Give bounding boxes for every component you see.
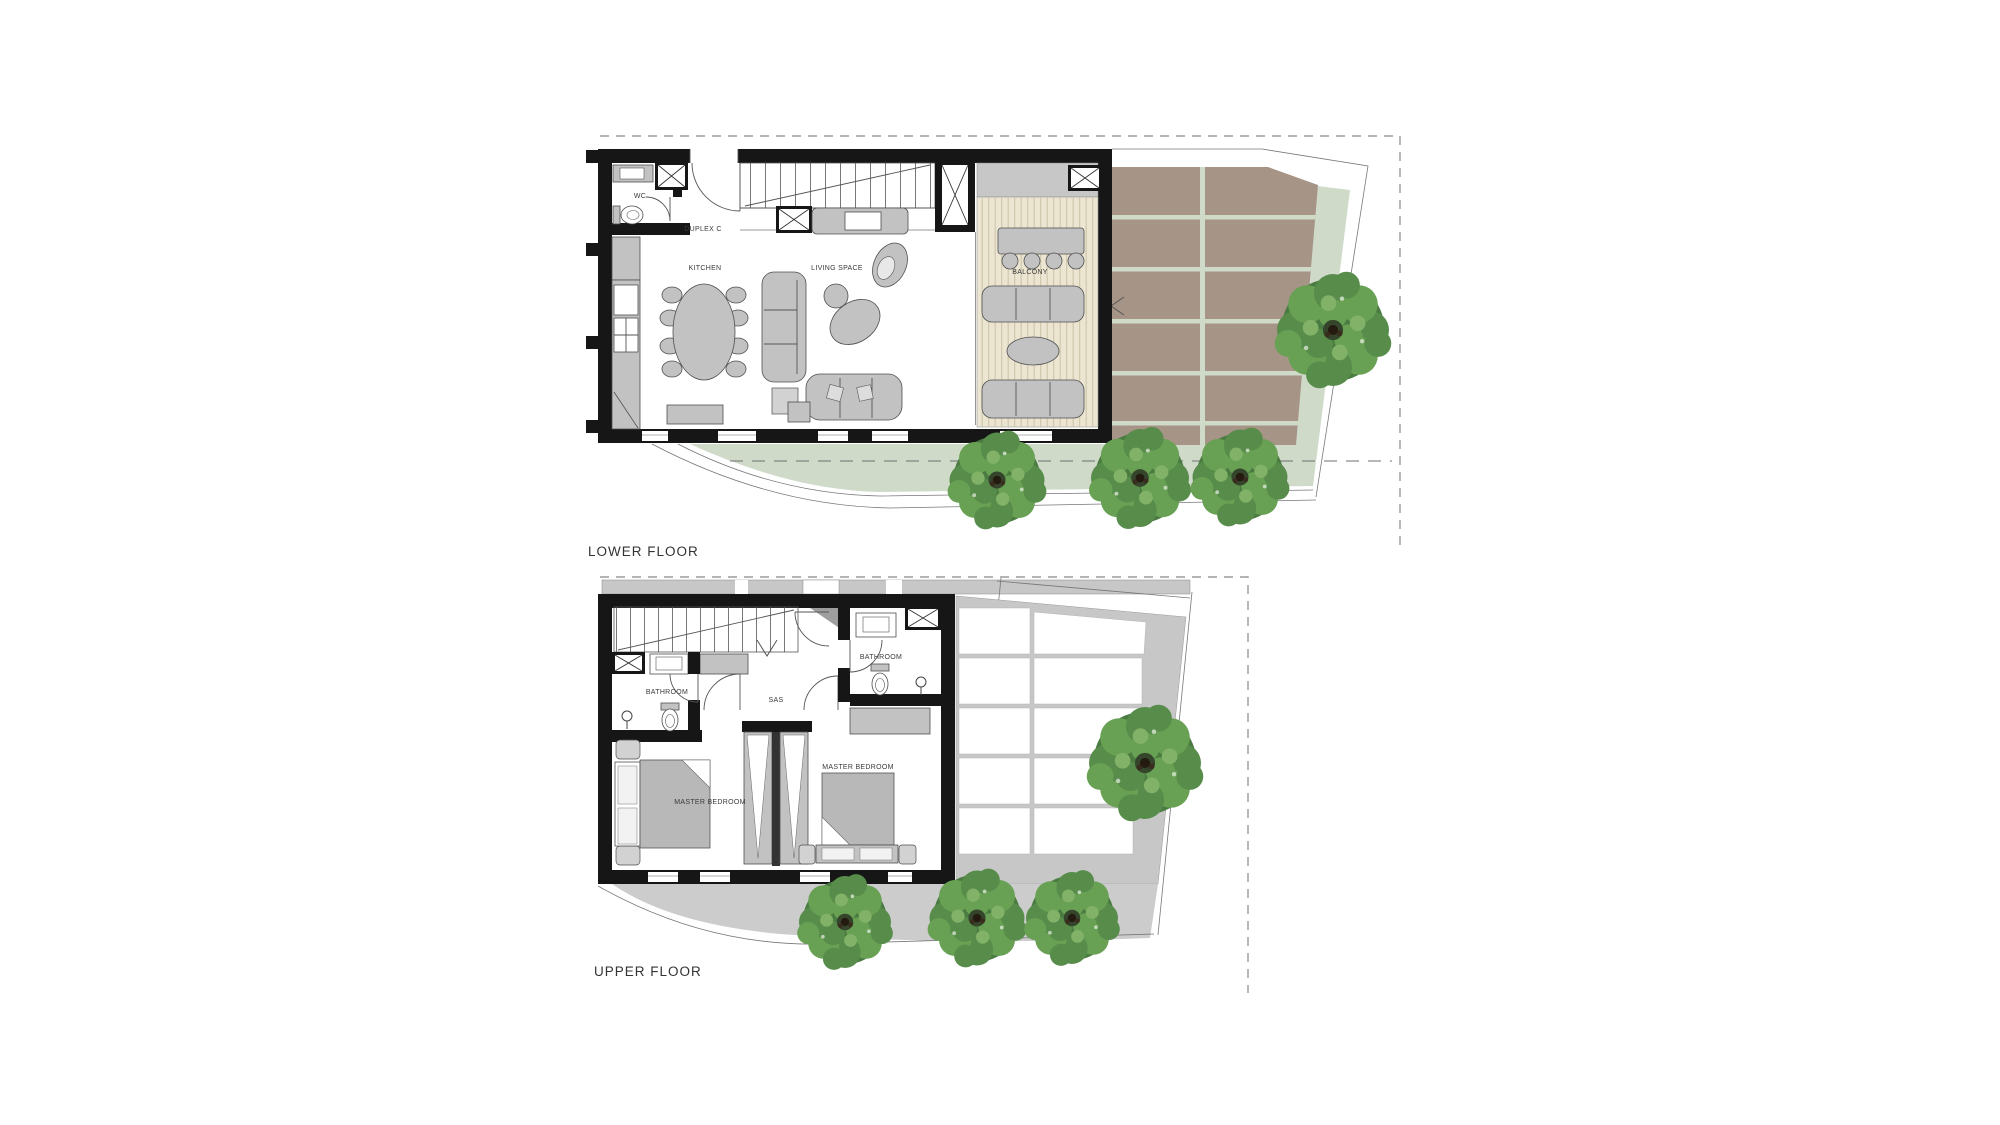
lower-balcony <box>977 163 1102 427</box>
dining-table-set <box>660 284 748 380</box>
stair-shaft <box>935 158 975 232</box>
upper-right-bedroom <box>799 773 916 864</box>
closet-icon <box>850 708 930 734</box>
shaft-icon <box>905 606 941 630</box>
sideboard-icon <box>667 405 723 424</box>
floor-title-upper: UPPER FLOOR <box>594 964 702 979</box>
bedroom-door-swing <box>704 674 740 710</box>
label-bathroom-left: BATHROOM <box>646 689 688 696</box>
shaft-icon <box>612 652 645 674</box>
nightstand-icon <box>799 845 815 864</box>
label-living-space: LIVING SPACE <box>811 265 863 272</box>
pouf-icon <box>824 284 848 308</box>
label-sas: SAS <box>769 697 784 704</box>
closet-icon <box>700 654 748 674</box>
sofa-icon <box>806 374 902 420</box>
label-kitchen: KITCHEN <box>689 265 722 272</box>
label-master-bedroom-left: MASTER BEDROOM <box>674 799 745 806</box>
upper-floor-plan: BATHROOM SAS BATHROOM MASTER BEDROOM MAS… <box>594 577 1248 993</box>
shaft-icon <box>655 162 688 190</box>
floor-plan-page: WC DUPLEX C KITCHEN LIVING SPACE BALCONY… <box>0 0 2000 1125</box>
bar-table-icon <box>998 228 1084 254</box>
nightstand-icon <box>899 845 916 864</box>
shower-icon <box>916 677 926 687</box>
outdoor-sofa-icon <box>982 286 1084 322</box>
kitchen-sink-counter <box>776 206 908 234</box>
upper-right-bathroom <box>838 606 943 734</box>
cooktop-icon <box>845 212 881 230</box>
side-table-icon <box>788 402 810 422</box>
outdoor-sofa-icon <box>982 380 1084 418</box>
label-duplex: DUPLEX C <box>684 226 721 233</box>
bed-icon <box>816 773 898 863</box>
floor-title-lower: LOWER FLOOR <box>588 544 699 559</box>
upper-roof-strip <box>602 580 1190 594</box>
nightstand-icon <box>616 846 640 865</box>
toilet-icon <box>613 206 620 224</box>
bedroom-door-swing <box>804 676 838 710</box>
sofa-icon <box>762 272 806 382</box>
upper-left-bathroom <box>598 652 748 742</box>
floor-plan-drawing: WC DUPLEX C KITCHEN LIVING SPACE BALCONY… <box>0 0 2000 1125</box>
coffee-table-icon <box>1007 337 1059 365</box>
lower-kitchen-counters <box>612 237 640 429</box>
nightstand-icon <box>616 740 640 759</box>
label-wc: WC <box>634 193 646 200</box>
wardrobe-icon <box>744 732 808 866</box>
label-bathroom-right: BATHROOM <box>860 654 902 661</box>
upper-stairs <box>614 607 829 656</box>
bathroom-door-swing <box>670 674 698 702</box>
shaft-icon <box>1068 165 1102 191</box>
wc-door-swing <box>646 197 670 221</box>
entry-door-swing <box>692 163 740 211</box>
label-balcony: BALCONY <box>1012 269 1048 276</box>
lower-floor-plan: WC DUPLEX C KITCHEN LIVING SPACE BALCONY… <box>586 136 1400 559</box>
label-master-bedroom-right: MASTER BEDROOM <box>822 764 893 771</box>
shower-icon <box>622 711 632 721</box>
toilet-icon <box>871 664 889 671</box>
